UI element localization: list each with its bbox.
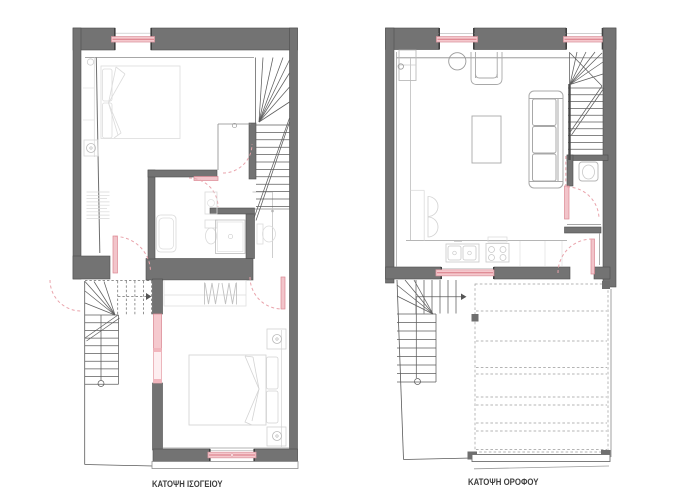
svg-text:ΚΑΤΟΨΗ ΙΣΟΓΕΙΟΥ: ΚΑΤΟΨΗ ΙΣΟΓΕΙΟΥ xyxy=(152,479,223,489)
svg-text:ΚΑΤΟΨΗ ΟΡΟΦΟΥ: ΚΑΤΟΨΗ ΟΡΟΦΟΥ xyxy=(468,477,539,487)
